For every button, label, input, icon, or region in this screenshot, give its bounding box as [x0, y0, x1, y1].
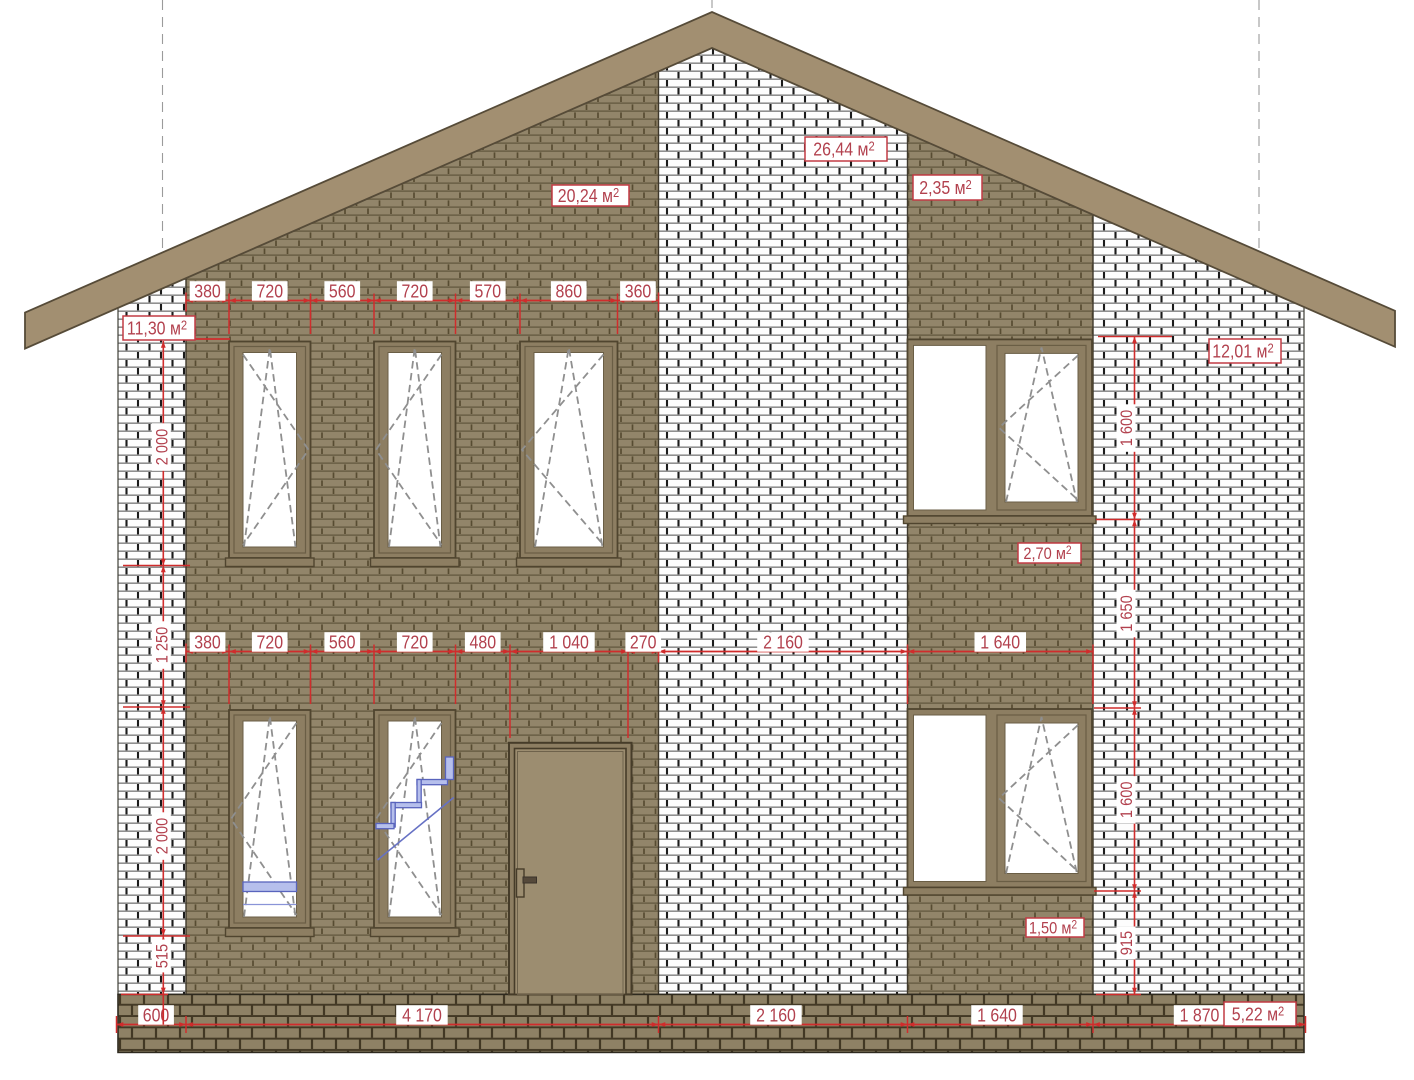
svg-text:515: 515: [153, 944, 171, 969]
svg-text:480: 480: [470, 632, 497, 653]
svg-text:1 250: 1 250: [153, 627, 171, 664]
svg-text:1 600: 1 600: [1118, 781, 1136, 818]
svg-text:5,22 м2: 5,22 м2: [1232, 1003, 1285, 1024]
svg-text:720: 720: [402, 632, 429, 653]
svg-text:11,30 м2: 11,30 м2: [127, 317, 187, 338]
svg-text:600: 600: [143, 1005, 170, 1026]
svg-text:915: 915: [1118, 931, 1136, 956]
svg-text:1 650: 1 650: [1118, 595, 1136, 632]
svg-text:20,24 м2: 20,24 м2: [558, 185, 620, 206]
svg-text:720: 720: [257, 632, 284, 653]
svg-text:720: 720: [257, 281, 284, 302]
svg-text:380: 380: [194, 281, 221, 302]
svg-text:1 600: 1 600: [1118, 410, 1136, 447]
svg-text:1 870: 1 870: [1180, 1005, 1220, 1026]
svg-text:2,70 м2: 2,70 м2: [1023, 544, 1071, 563]
svg-text:2 160: 2 160: [756, 1005, 796, 1026]
svg-text:1 040: 1 040: [549, 632, 589, 653]
svg-text:380: 380: [194, 632, 221, 653]
svg-text:2 000: 2 000: [153, 818, 171, 855]
svg-text:1 640: 1 640: [977, 1005, 1017, 1026]
svg-text:860: 860: [556, 281, 583, 302]
svg-text:270: 270: [630, 632, 657, 653]
svg-text:2 160: 2 160: [763, 632, 803, 653]
svg-text:12,01 м2: 12,01 м2: [1212, 340, 1274, 361]
svg-text:1 640: 1 640: [980, 632, 1020, 653]
svg-text:560: 560: [329, 281, 356, 302]
svg-text:720: 720: [402, 281, 429, 302]
svg-text:560: 560: [329, 632, 356, 653]
svg-text:360: 360: [625, 281, 652, 302]
svg-text:26,44 м2: 26,44 м2: [813, 138, 875, 159]
svg-text:570: 570: [475, 281, 502, 302]
svg-text:4 170: 4 170: [402, 1005, 442, 1026]
svg-text:2,35 м2: 2,35 м2: [919, 177, 972, 198]
svg-text:2 000: 2 000: [153, 429, 171, 466]
svg-text:1,50 м2: 1,50 м2: [1029, 919, 1077, 938]
